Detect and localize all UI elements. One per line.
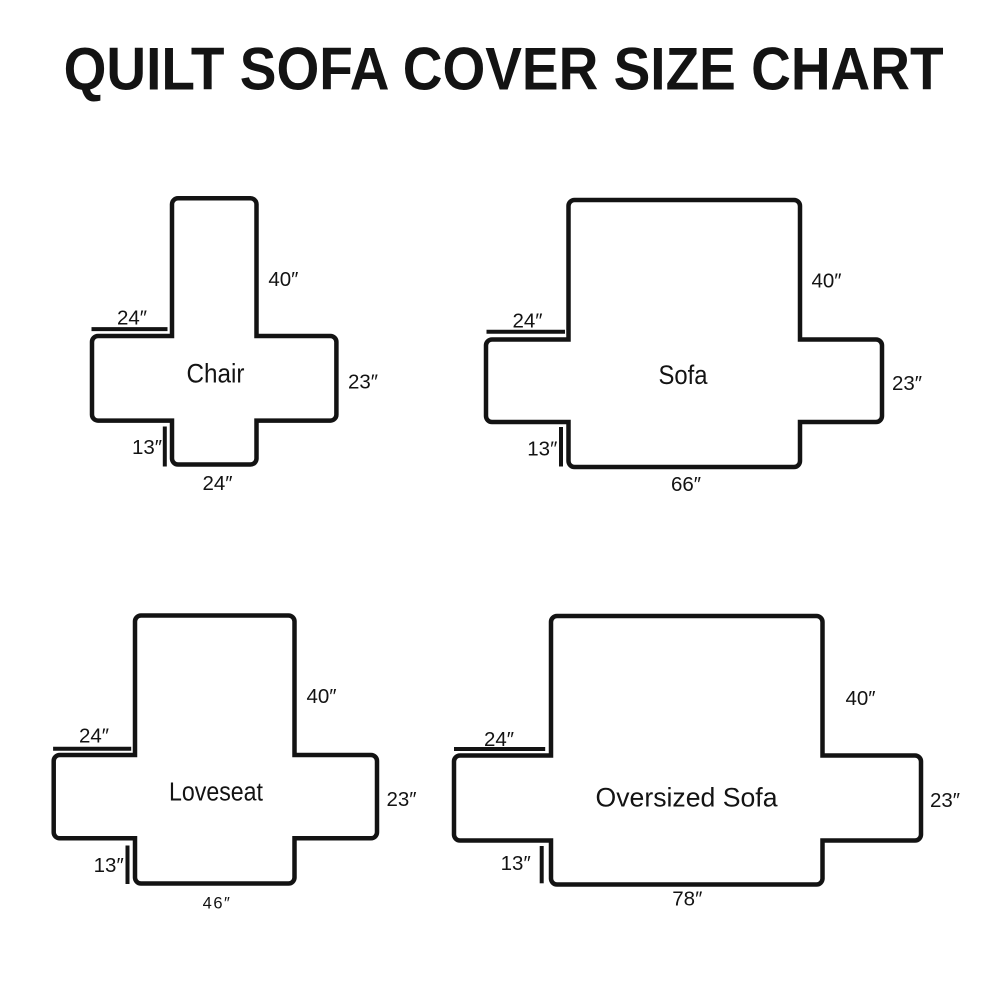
svg-text:13″: 13″ — [527, 438, 557, 461]
svg-text:13″: 13″ — [94, 854, 124, 877]
svg-text:40″: 40″ — [268, 268, 298, 291]
svg-text:24″: 24″ — [512, 309, 542, 332]
svg-text:24″: 24″ — [202, 472, 232, 495]
svg-text:40″: 40″ — [845, 687, 875, 710]
svg-text:13″: 13″ — [132, 436, 162, 459]
svg-text:78″: 78″ — [672, 888, 702, 911]
svg-text:23″: 23″ — [348, 370, 378, 393]
svg-text:40″: 40″ — [306, 685, 336, 708]
svg-text:13″: 13″ — [501, 852, 531, 875]
svg-text:Chair: Chair — [187, 358, 245, 388]
svg-text:66″: 66″ — [671, 473, 701, 496]
svg-text:Sofa: Sofa — [659, 360, 708, 390]
svg-text:23″: 23″ — [892, 372, 922, 395]
svg-text:QUILT SOFA COVER SIZE CHART: QUILT SOFA COVER SIZE CHART — [64, 34, 944, 102]
svg-text:Loveseat: Loveseat — [169, 778, 263, 806]
svg-text:24″: 24″ — [117, 306, 147, 329]
svg-text:24″: 24″ — [484, 728, 514, 751]
svg-text:24″: 24″ — [79, 725, 109, 748]
svg-text:40″: 40″ — [811, 270, 841, 293]
svg-text:46″: 46″ — [203, 895, 232, 913]
svg-text:23″: 23″ — [930, 789, 960, 812]
svg-text:23″: 23″ — [386, 788, 416, 811]
svg-text:Oversized Sofa: Oversized Sofa — [596, 783, 778, 813]
